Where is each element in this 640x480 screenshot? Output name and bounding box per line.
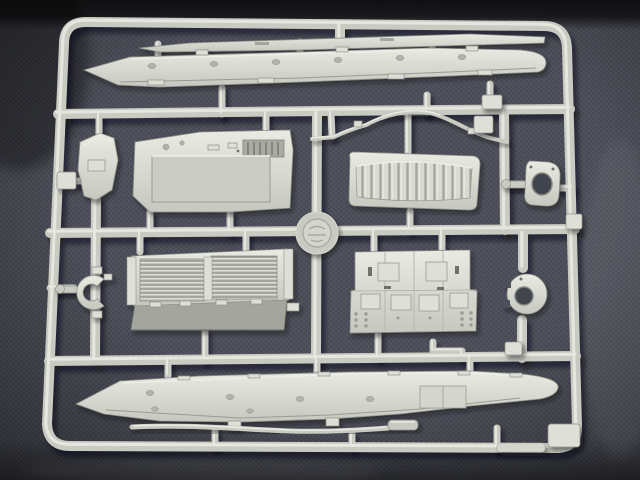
louvered-grille-panel: louvered-grille-panel (127, 249, 299, 330)
sprue-photo-canvas: rounded-rectangle outer frame with three… (0, 0, 640, 480)
ribbed-rear-panel: ribbed-rear-panel (349, 152, 480, 210)
sprue-logo-medallion: sprue-logo-medallion (296, 212, 338, 254)
glacis-plate: glacis-plate (78, 133, 118, 200)
hatch-roof-panel: hatch-roof-panel (350, 250, 477, 333)
photo-model-kit-sprue: rounded-rectangle outer frame with three… (0, 0, 640, 480)
engine-deck-panel: engine-deck-panel (133, 130, 293, 212)
